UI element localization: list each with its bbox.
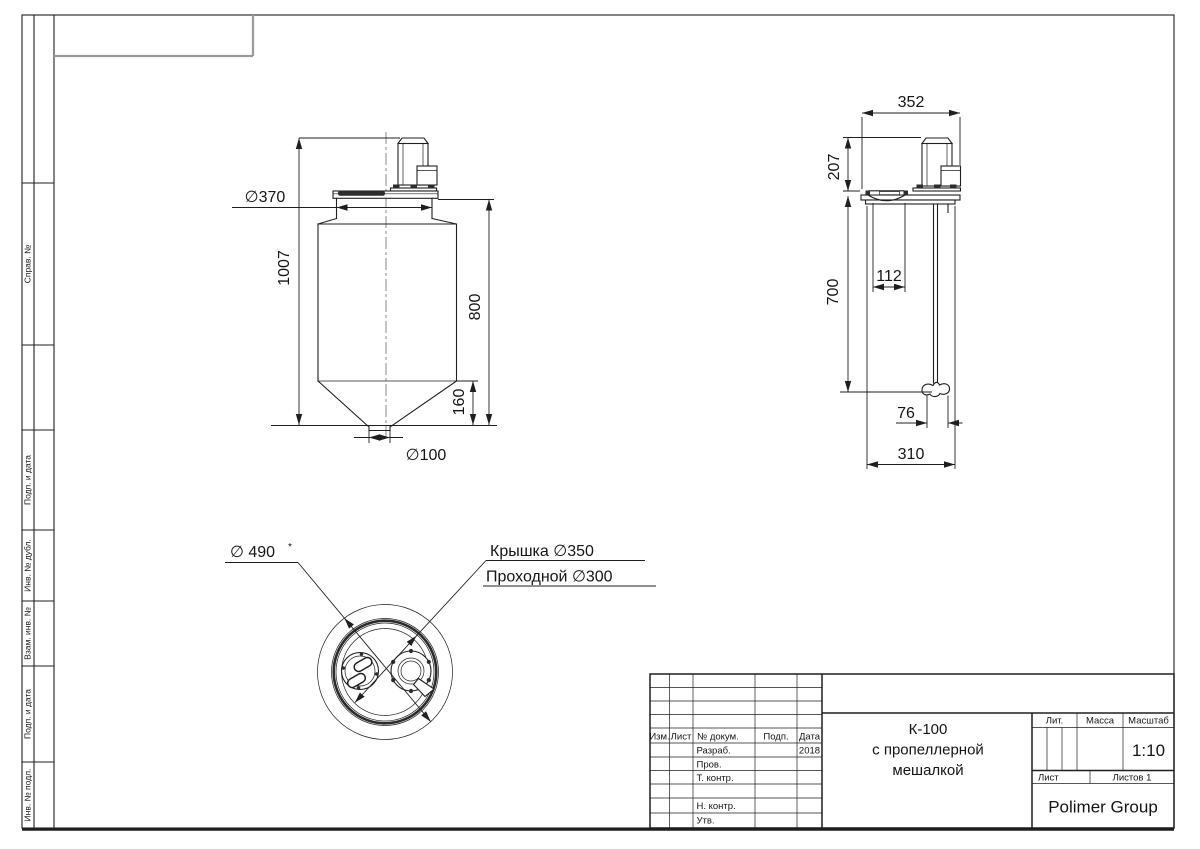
- sidebar-label-sprav: Справ. №: [23, 245, 33, 284]
- tb-lit-label: Лит.: [1046, 716, 1063, 727]
- dim-112-text: 112: [876, 268, 902, 285]
- drawing-sheet: Справ. № Подп. и дата Инв. № дубл. Взам.…: [0, 0, 1200, 849]
- tb-mass-label: Масса: [1086, 716, 1115, 727]
- dim-352-text: 352: [898, 94, 925, 111]
- plan-mixer-mount: [342, 652, 379, 689]
- tb-company: Polimer Group: [1048, 798, 1158, 817]
- propeller: [922, 382, 950, 396]
- tb-scale-label: Масштаб: [1128, 716, 1169, 727]
- sidebar-label-inv-podl: Инв. № подл.: [23, 769, 33, 822]
- dim-width-112: 112: [873, 203, 905, 292]
- front-motor: [391, 138, 438, 191]
- dim-100-text: ∅100: [406, 447, 447, 464]
- side-shaft: [922, 204, 950, 397]
- sidebar-label-inv-dubl: Инв. № дубл.: [23, 539, 33, 592]
- tb-title-line1: К-100: [909, 721, 948, 738]
- plan-tank-circle: [318, 605, 453, 740]
- tb-header-sign: Подп.: [763, 732, 788, 743]
- front-tank: [318, 191, 457, 431]
- sidebar: Справ. № Подп. и дата Инв. № дубл. Взам.…: [22, 15, 54, 828]
- sheet-frame: [22, 15, 1174, 830]
- tb-row-prov: Пров.: [697, 760, 722, 771]
- tb-sheet-label: Лист: [1038, 773, 1059, 784]
- tb-header-doc: № докум.: [697, 732, 739, 743]
- dim-490-text: ∅ 490: [230, 544, 275, 561]
- dim-490-star: *: [288, 542, 292, 553]
- side-view: 352 207 700 112 76: [825, 94, 963, 469]
- tb-row-razrab-date: 2018: [799, 746, 820, 757]
- dim-76-text: 76: [897, 405, 915, 422]
- dim-160-text: 160: [451, 389, 468, 416]
- sidebar-label-podp-data-1: Подп. и дата: [23, 455, 33, 505]
- tb-sheets-label: Листов 1: [1113, 773, 1152, 784]
- sidebar-label-podp-data-2: Подп. и дата: [23, 689, 33, 739]
- tb-title-line3: мешалкой: [892, 762, 963, 779]
- tb-title-line2: с пропеллерной: [872, 742, 984, 759]
- dim-height-160: 160: [451, 381, 478, 425]
- side-hatch-handle: [880, 192, 900, 195]
- dim-height-207: 207: [826, 138, 921, 192]
- plan-view: ∅ 490 * Крышка ∅350 Проходной ∅300: [225, 542, 656, 740]
- dim-1007-text: 1007: [276, 250, 293, 286]
- title-block: Изм. Лист № докум. Подп. Дата Разраб. 20…: [649, 674, 1174, 828]
- dim-370-text: ∅370: [245, 189, 286, 206]
- tb-row-razrab: Разраб.: [697, 746, 731, 757]
- tb-header-izm: Изм.: [649, 732, 669, 743]
- dim-width-310: 310: [867, 206, 955, 469]
- dim-700-text: 700: [825, 279, 842, 306]
- front-view: ∅370 1007 800 160: [232, 132, 497, 464]
- dim-height-1007: 1007: [271, 138, 497, 426]
- tb-row-nkontr: Н. контр.: [697, 801, 736, 812]
- front-hatch: [338, 191, 385, 196]
- tb-header-sheet: Лист: [671, 732, 692, 743]
- dim-diameter-100: ∅100: [354, 429, 446, 464]
- tb-row-tkontr: Т. контр.: [697, 773, 734, 784]
- dim-800-text: 800: [467, 294, 484, 321]
- dim-height-700: 700: [825, 196, 932, 392]
- dim-310-text: 310: [898, 446, 925, 463]
- side-lid: [861, 191, 960, 213]
- side-motor: [913, 138, 961, 191]
- tb-header-date: Дата: [799, 732, 821, 743]
- drawing-canvas: Справ. № Подп. и дата Инв. № дубл. Взам.…: [0, 0, 1200, 849]
- dim-207-text: 207: [826, 154, 843, 181]
- tb-scale-value: 1:10: [1132, 741, 1165, 760]
- dim-width-76: 76: [896, 396, 963, 429]
- dim-diameter-490: ∅ 490 *: [225, 542, 433, 724]
- tb-row-utv: Утв.: [697, 816, 715, 827]
- sidebar-label-vzam-inv: Взам. инв. №: [23, 607, 33, 660]
- label-passage-text: Проходной ∅300: [486, 569, 613, 586]
- label-cover-text: Крышка ∅350: [490, 543, 594, 560]
- corner-stamp: [54, 15, 253, 56]
